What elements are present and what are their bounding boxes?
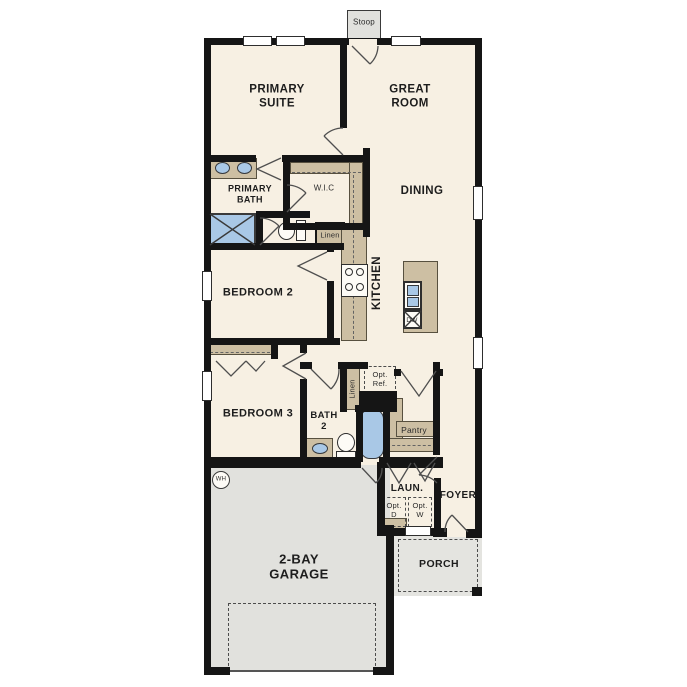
label-opt-dryer: Opt. D — [387, 502, 402, 520]
label-bath2: BATH 2 — [310, 410, 337, 432]
label-foyer: FOYER — [440, 490, 476, 502]
label-water-heater: WH — [216, 476, 226, 483]
label-kitchen: KITCHEN — [371, 256, 385, 310]
label-pantry: Pantry — [401, 425, 427, 435]
label-primary-bath: PRIMARY BATH — [228, 183, 272, 204]
label-stoop: Stoop — [353, 17, 375, 26]
label-opt-ref: Opt. Ref. — [373, 371, 388, 389]
label-primary-suite: PRIMARY SUITE — [249, 83, 304, 110]
label-garage: 2-BAY GARAGE — [269, 552, 328, 583]
label-linen-hall: Linen — [320, 232, 339, 241]
label-bedroom3: BEDROOM 3 — [223, 408, 293, 421]
label-linen-bath2: Linen — [349, 379, 358, 398]
door-swings-layer — [0, 0, 687, 687]
label-bedroom2: BEDROOM 2 — [223, 287, 293, 300]
label-opt-washer: Opt. W — [413, 502, 428, 520]
floor-plan-canvas: PRIMARY SUITE GREAT ROOM DINING KITCHEN … — [0, 0, 687, 687]
label-great-room: GREAT ROOM — [389, 83, 430, 110]
label-dishwasher: DW — [406, 317, 417, 325]
label-dining: DINING — [401, 185, 444, 199]
label-laundry: LAUN. — [391, 483, 424, 495]
label-wic: W.I.C — [314, 183, 335, 192]
label-porch: PORCH — [419, 558, 459, 570]
